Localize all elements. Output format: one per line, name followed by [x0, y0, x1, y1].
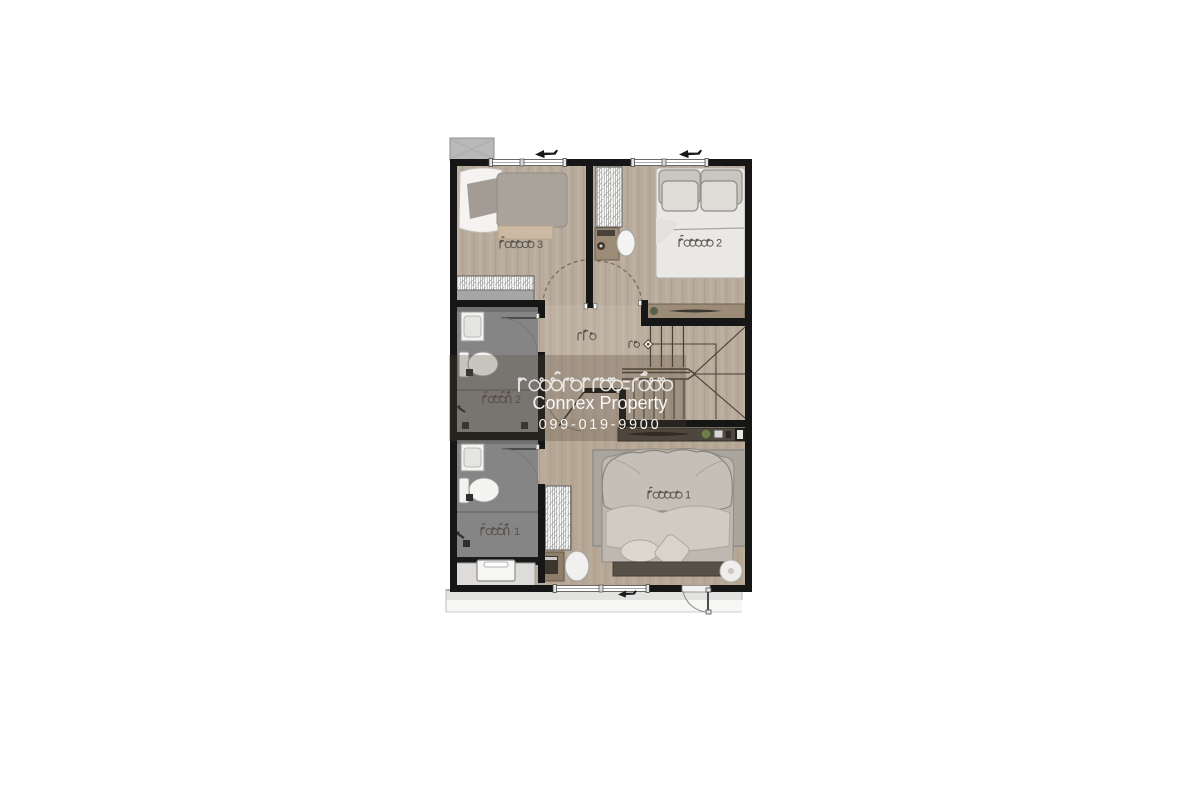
svg-text:1: 1 [514, 526, 520, 538]
svg-text:099-019-9900: 099-019-9900 [539, 417, 662, 433]
svg-text:2: 2 [716, 238, 722, 250]
svg-text:1: 1 [685, 490, 691, 502]
svg-text:3: 3 [537, 239, 543, 251]
svg-text:Connex Property: Connex Property [532, 393, 667, 413]
